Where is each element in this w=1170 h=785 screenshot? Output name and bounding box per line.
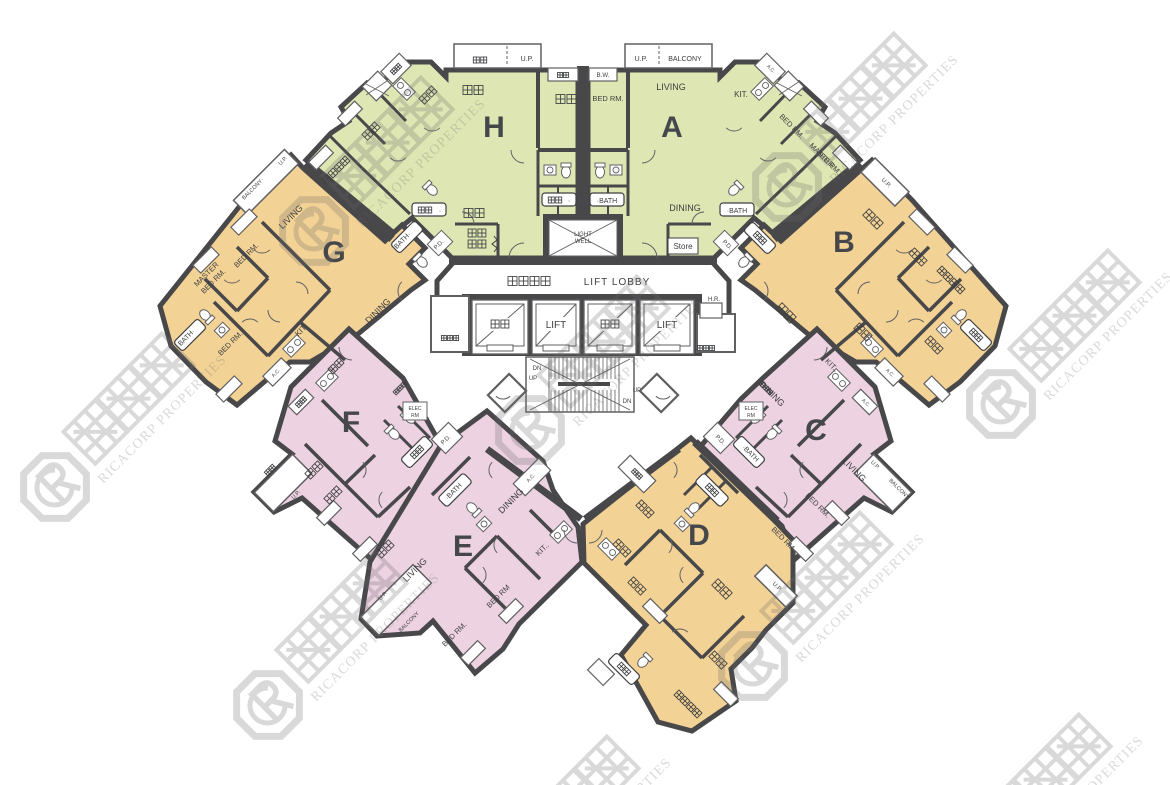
svg-text:D: D [688,519,710,552]
svg-text:KIT.: KIT. [734,90,748,99]
svg-text:RM: RM [411,413,419,419]
svg-text:A: A [661,111,683,144]
svg-text:BED RM.: BED RM. [592,94,623,103]
svg-text:H: H [483,111,505,144]
svg-text:LIGHT: LIGHT [574,232,592,238]
svg-text:U.P.: U.P. [635,56,648,63]
svg-text:C: C [805,414,827,447]
svg-text:ELEC: ELEC [744,406,757,412]
svg-text:B: B [833,226,855,259]
svg-text:WELL: WELL [575,239,592,245]
svg-text:·: · [439,208,441,215]
svg-text:B.W.: B.W. [597,73,610,79]
svg-text:RM: RM [747,413,755,419]
svg-text:·BATH: ·BATH [597,198,617,205]
svg-text:Store: Store [673,242,693,251]
svg-text:H.R.: H.R. [708,297,720,303]
svg-text:U.P.: U.P. [521,56,534,63]
svg-text:UP: UP [529,376,537,382]
svg-text:E: E [453,530,473,563]
svg-text:·: · [568,198,570,205]
svg-text:DINING: DINING [669,203,701,213]
svg-text:LIFT: LIFT [546,320,567,331]
svg-text:ELEC: ELEC [408,406,421,412]
svg-text:LIVING: LIVING [656,82,686,92]
svg-text:·BATH: ·BATH [727,208,747,215]
svg-text:F: F [342,406,360,439]
svg-text:DN: DN [623,399,632,405]
svg-text:BALCONY: BALCONY [668,56,702,63]
